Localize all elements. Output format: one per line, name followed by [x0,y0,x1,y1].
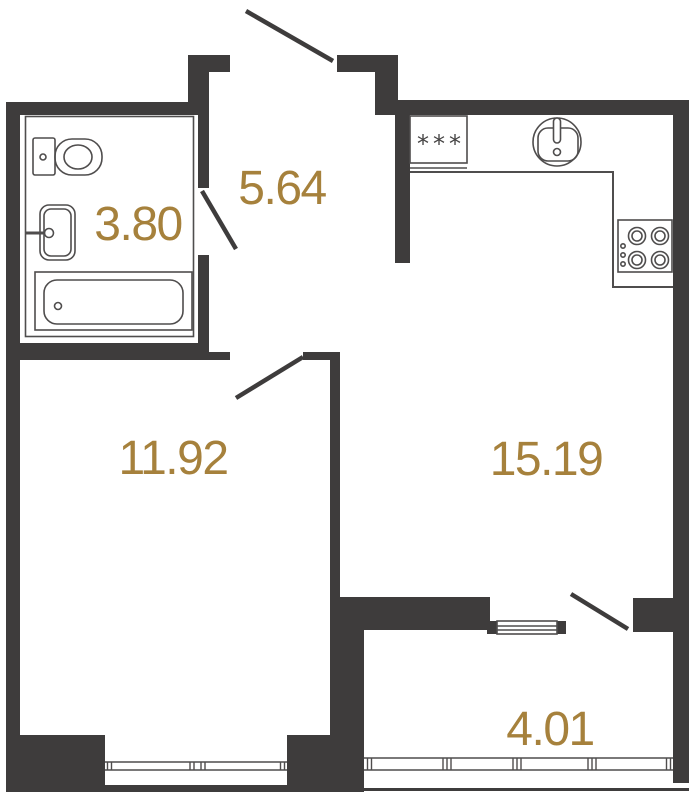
wall-balcony-top-right [633,598,675,632]
area-label-living-room: 11.92 [118,432,227,485]
balcony-glazing [364,758,673,770]
floor-plan: *** [0,0,697,800]
kitchen-counter-edge [410,172,673,287]
wash-basin-icon [26,205,75,260]
kitchen-fixtures: *** [410,116,673,287]
wall-living-kitchen-divider [330,352,340,597]
wall-bathroom-bottom [6,343,203,360]
cooktop-icon [618,220,672,272]
bathroom-door-leaf [202,191,236,249]
area-label-kitchen-living: 15.19 [490,433,603,486]
bathtub-icon [35,272,192,330]
wall-exterior-right [673,100,689,783]
wall-kitchen-top [393,100,689,115]
wall-bathroom-top [6,102,203,115]
wall-balcony-window-cap-left [487,621,497,634]
area-label-hallway: 5.64 [238,162,326,215]
toilet-icon [33,138,102,175]
livingroom-window-recess [105,735,287,785]
entrance-door-leaf [246,11,333,61]
wall-bathroom-hall-upper [198,72,209,188]
floor-plan-page: *** [0,0,697,800]
balcony-outer-edge-line [364,788,689,791]
refrigerator-icon: *** [410,116,467,168]
wall-bathroom-bottom-ext [203,352,230,360]
wall-balcony-window-cap-right [557,621,566,634]
balcony-door-leaf [571,594,628,629]
balcony-glazing-mullions [368,758,671,770]
wall-kitchen-hall [395,112,410,263]
area-label-bathroom: 3.80 [94,198,181,251]
area-label-balcony: 4.01 [506,703,593,756]
kitchen-sink-icon [533,118,581,166]
livingroom-door-leaf [236,357,303,398]
wall-balcony-top-left [330,597,490,630]
wall-exterior-left [6,102,20,792]
wall-bathroom-hall-lower [198,255,209,352]
walls [6,55,689,792]
balcony-window [497,621,557,634]
refrigerator-symbol: *** [417,130,465,158]
